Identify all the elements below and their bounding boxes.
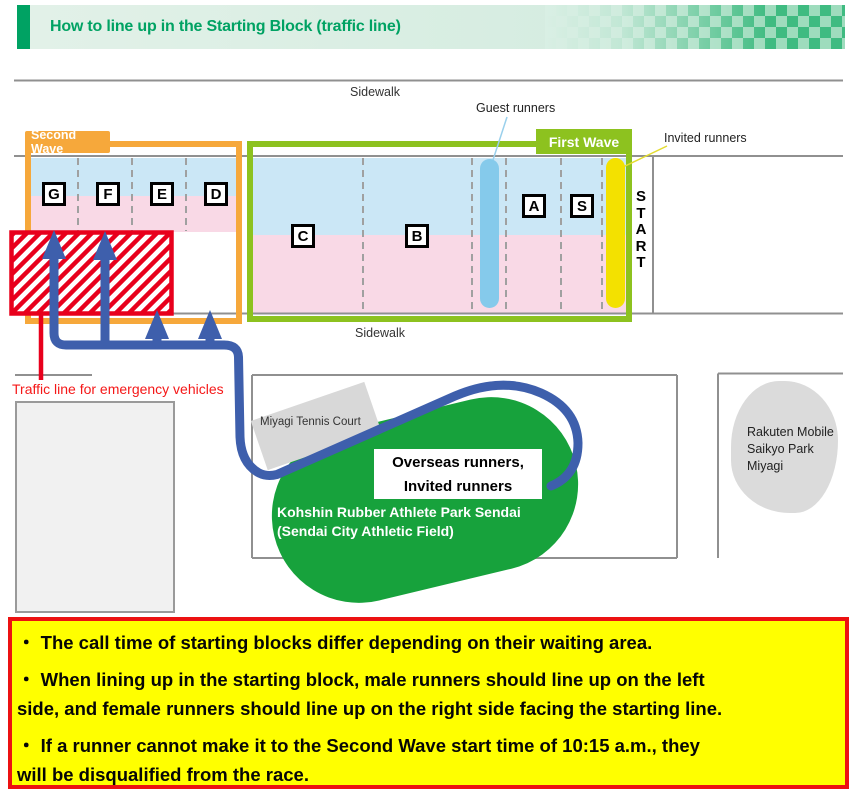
park-overlay-line1: Overseas runners,	[374, 451, 542, 475]
sidewalk-label-top: Sidewalk	[350, 85, 400, 99]
block-S: S	[570, 194, 594, 218]
note-line: will be disqualified from the race.	[17, 760, 843, 789]
guest-runners-label: Guest runners	[476, 101, 555, 115]
first-wave-label: First Wave	[536, 129, 632, 154]
rakuten-park-label: Rakuten Mobile Saikyo Park Miyagi	[747, 424, 834, 475]
second-wave-outline	[25, 141, 242, 324]
building-block	[15, 401, 175, 613]
guest-runners-lane	[480, 159, 499, 308]
park-name-line1: Kohshin Rubber Athlete Park Sendai	[277, 503, 521, 522]
invited-runners-lane	[606, 158, 625, 308]
block-A: A	[522, 194, 546, 218]
park-name: Kohshin Rubber Athlete Park Sendai (Send…	[277, 503, 521, 541]
start-text: S T A R T	[630, 189, 652, 272]
block-D: D	[204, 182, 228, 206]
second-wave-label: Second Wave	[25, 131, 110, 153]
park-name-line2: (Sendai City Athletic Field)	[277, 522, 521, 541]
tennis-court-label: Miyagi Tennis Court	[260, 416, 361, 428]
invited-runners-label: Invited runners	[664, 131, 747, 145]
park-overlay-line2: Invited runners	[374, 475, 542, 499]
park-overlay-box: Overseas runners, Invited runners	[374, 449, 542, 499]
diagram-page: How to line up in the Starting Block (tr…	[0, 0, 857, 794]
block-G: G	[42, 182, 66, 206]
notes-box: ・ The call time of starting blocks diffe…	[8, 617, 849, 789]
header-accent-bar	[17, 5, 30, 49]
note-line: side, and female runners should line up …	[17, 694, 843, 723]
page-title: How to line up in the Starting Block (tr…	[50, 5, 401, 49]
header-checker-pattern	[545, 5, 845, 49]
block-E: E	[150, 182, 174, 206]
block-F: F	[96, 182, 120, 206]
note-line: ・ When lining up in the starting block, …	[17, 665, 843, 694]
traffic-line-label: Traffic line for emergency vehicles	[12, 381, 224, 397]
note-line: ・ The call time of starting blocks diffe…	[17, 628, 843, 657]
sidewalk-label-bottom: Sidewalk	[355, 326, 405, 340]
block-C: C	[291, 224, 315, 248]
block-B: B	[405, 224, 429, 248]
note-line: ・ If a runner cannot make it to the Seco…	[17, 731, 843, 760]
